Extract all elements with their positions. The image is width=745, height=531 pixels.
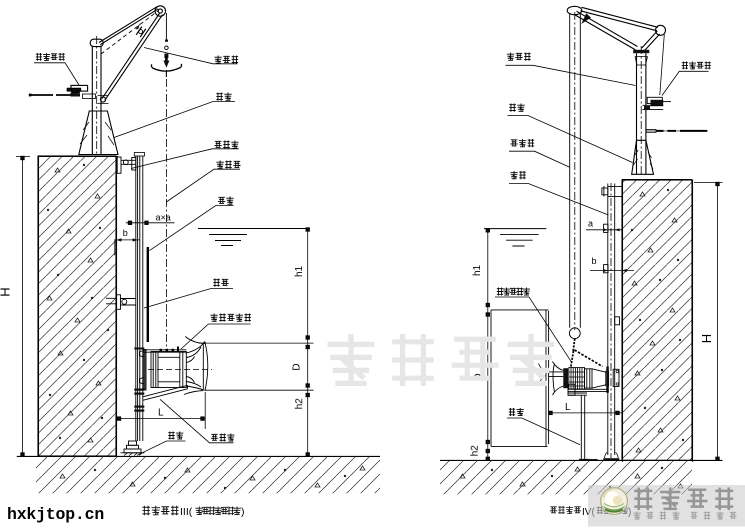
svg-text:b: b <box>123 228 128 238</box>
svg-text:a: a <box>588 219 593 229</box>
svg-text:): ) <box>241 506 245 518</box>
svg-text:hxkjtop.cn: hxkjtop.cn <box>7 505 104 524</box>
svg-text:h1: h1 <box>294 266 305 278</box>
svg-text:L: L <box>158 408 164 419</box>
svg-text:H: H <box>699 334 714 343</box>
svg-text:h2: h2 <box>470 445 481 457</box>
svg-text:D: D <box>292 363 303 370</box>
svg-text:h1: h1 <box>472 265 483 277</box>
svg-text:a×a: a×a <box>156 213 171 223</box>
svg-text:H: H <box>0 287 13 296</box>
svg-text:h2: h2 <box>294 398 305 410</box>
svg-text:III(: III( <box>180 506 193 518</box>
svg-text:L: L <box>565 402 571 413</box>
svg-text:b: b <box>592 256 597 266</box>
